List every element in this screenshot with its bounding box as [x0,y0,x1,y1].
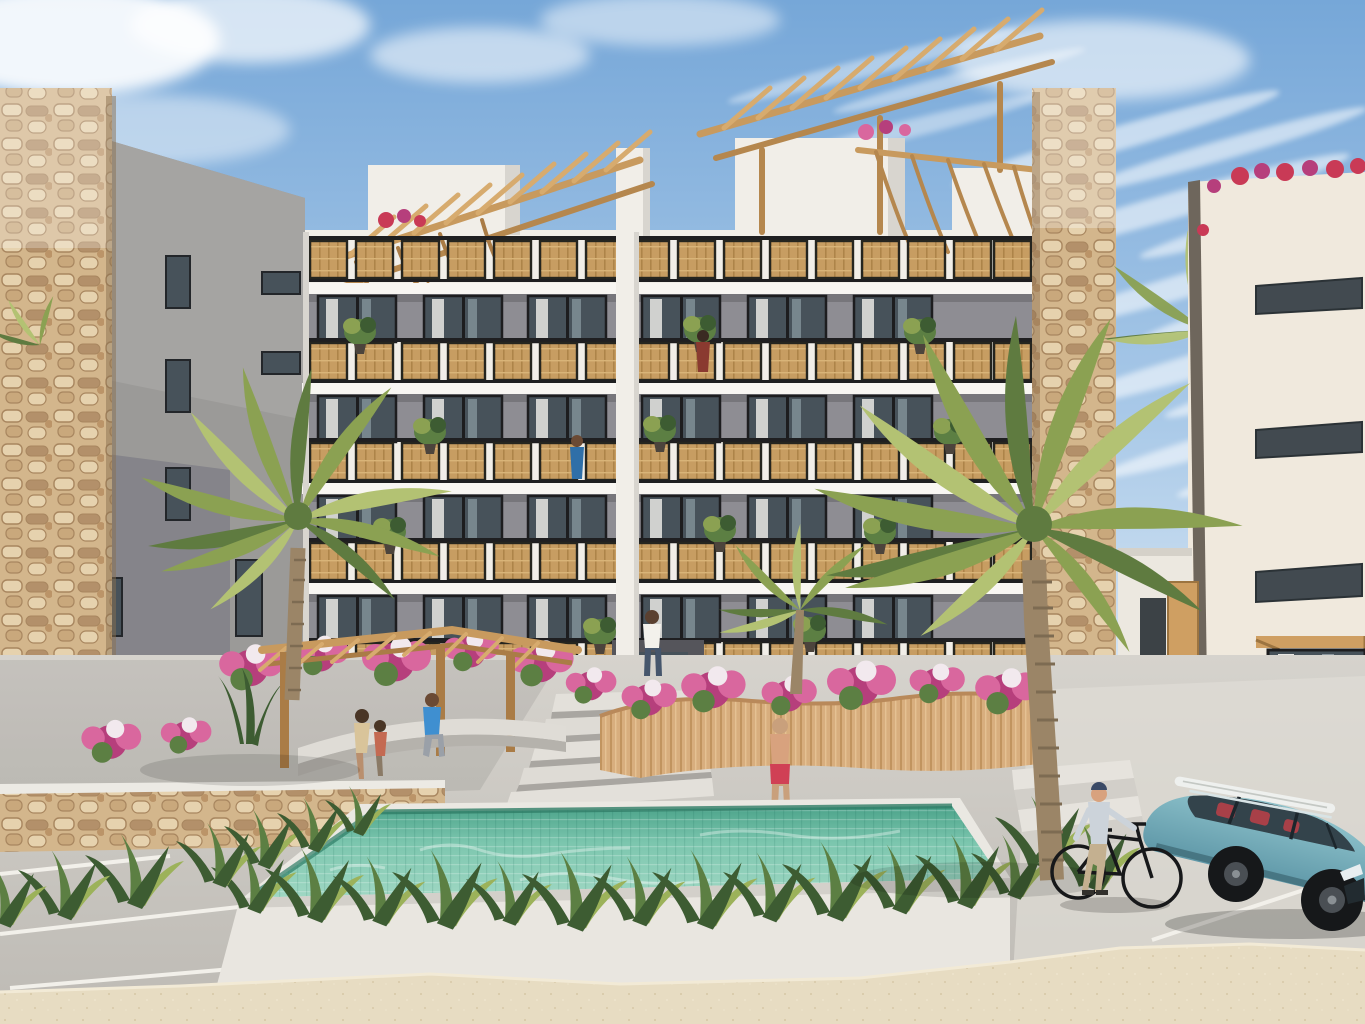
architectural-rendering [0,0,1365,1024]
scene-canvas [0,0,1365,1024]
balcony-person-floor3 [570,435,584,479]
roof-terrace-railing [303,236,1037,294]
balcony-person-floor4 [696,330,710,372]
floor-3 [302,394,1036,494]
